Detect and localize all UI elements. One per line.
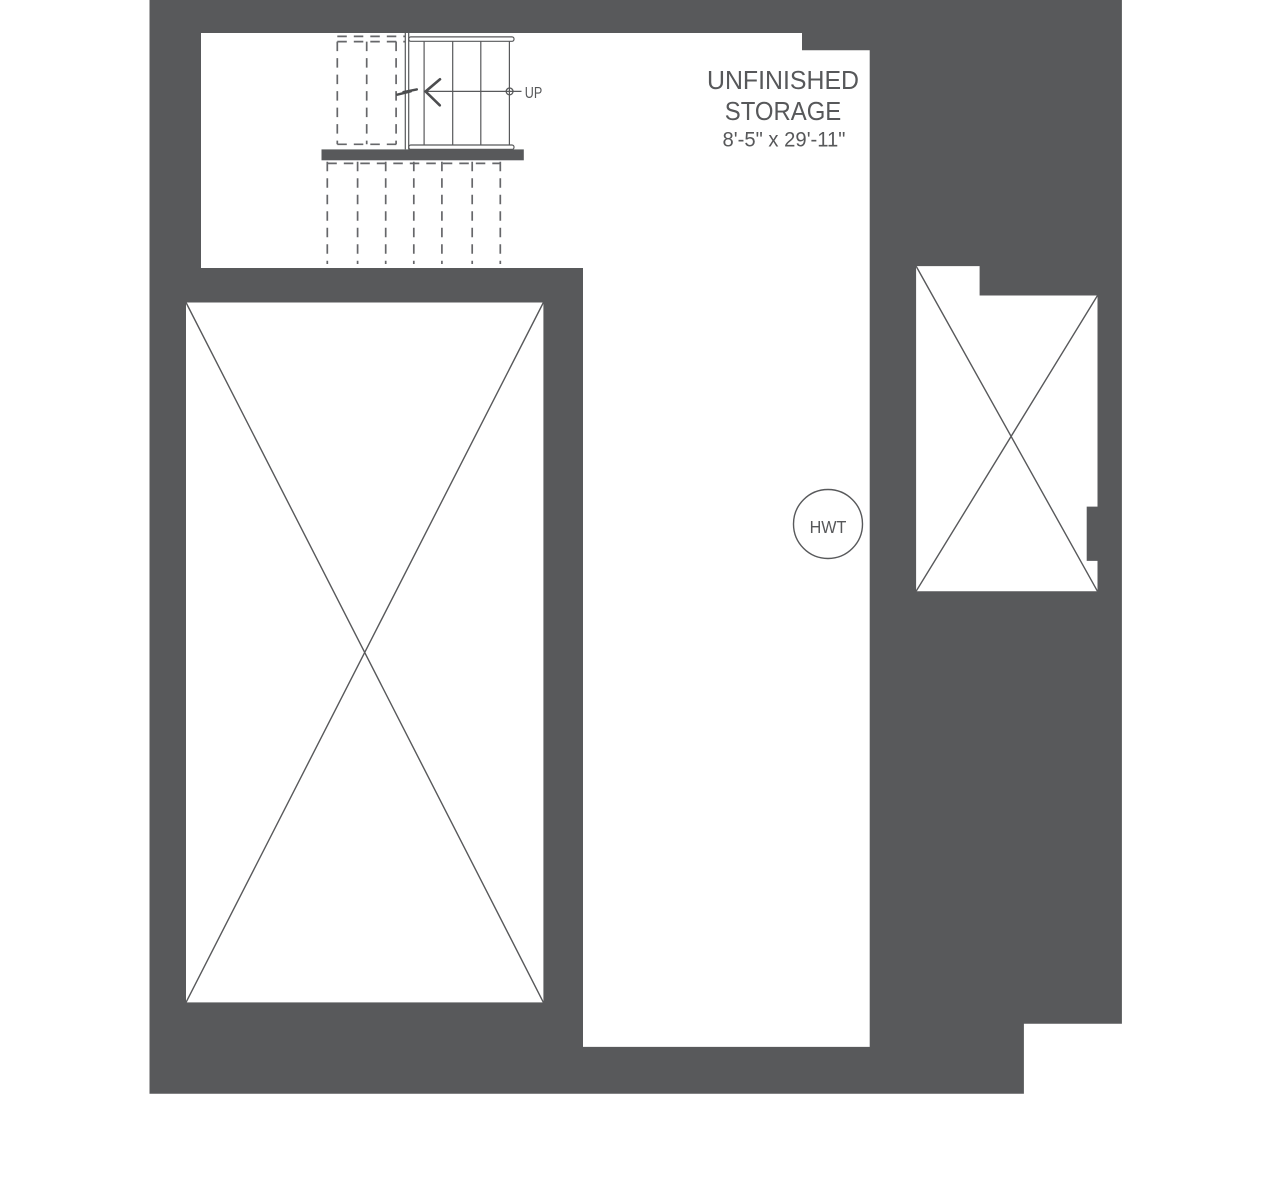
svg-text:8'-5" x 29'-11": 8'-5" x 29'-11" xyxy=(723,128,846,152)
svg-text:UP: UP xyxy=(525,85,543,102)
svg-text:UNFINISHED: UNFINISHED xyxy=(707,65,859,95)
svg-text:STORAGE: STORAGE xyxy=(725,96,842,126)
svg-text:HWT: HWT xyxy=(810,517,847,537)
